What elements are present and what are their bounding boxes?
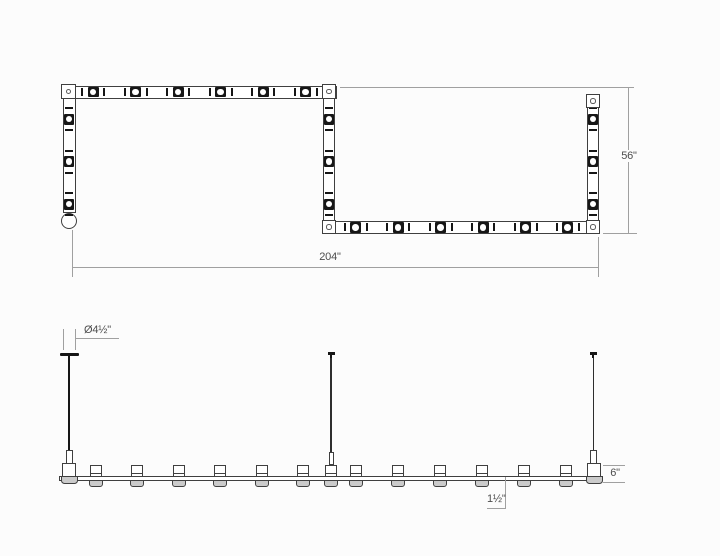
right-end-housing xyxy=(587,463,601,477)
light-module-elevation xyxy=(256,465,268,477)
middle-suspension-cable xyxy=(330,358,331,452)
canopy-dim-leader xyxy=(75,338,119,339)
light-module-elevation xyxy=(214,465,226,477)
right-end-lens xyxy=(586,476,603,484)
light-module-elevation xyxy=(476,465,488,477)
light-module-elevation xyxy=(173,465,185,477)
light-module-lens xyxy=(475,480,489,487)
left-end-housing xyxy=(62,463,76,477)
middle-cable-connector xyxy=(329,452,335,465)
canopy-dim-tick-left xyxy=(63,329,64,350)
light-module-lens xyxy=(255,480,269,487)
light-module-lens xyxy=(349,480,363,487)
light-module-lens xyxy=(517,480,531,487)
light-module-lens xyxy=(324,480,338,487)
light-module-lens xyxy=(172,480,186,487)
technical-drawing-canvas: 56" 204" Ø4½" 6" xyxy=(0,0,720,556)
canopy-dim-label: Ø4½" xyxy=(82,324,113,336)
light-module-elevation xyxy=(434,465,446,477)
light-module-elevation xyxy=(560,465,572,477)
lens-drop-leader-h xyxy=(487,508,506,509)
light-module-lens xyxy=(89,480,103,487)
light-module-elevation xyxy=(350,465,362,477)
light-module-lens xyxy=(391,480,405,487)
light-module-lens xyxy=(213,480,227,487)
end-height-ext-bottom xyxy=(603,482,625,483)
light-module-elevation xyxy=(297,465,309,477)
light-module-elevation xyxy=(90,465,102,477)
lens-drop-label: 1½" xyxy=(485,493,508,505)
canopy-dim-tick-right xyxy=(75,329,76,350)
light-module-elevation xyxy=(325,465,337,477)
left-cable-connector xyxy=(66,450,73,464)
light-module-elevation xyxy=(518,465,530,477)
light-module-elevation xyxy=(131,465,143,477)
left-suspension-cable xyxy=(68,356,70,450)
right-suspension-cable xyxy=(593,358,594,450)
light-module-lens xyxy=(433,480,447,487)
end-height-label: 6" xyxy=(604,467,626,479)
light-module-lens xyxy=(296,480,310,487)
end-height-ext-top xyxy=(603,465,625,466)
light-module-lens xyxy=(130,480,144,487)
light-module-lens xyxy=(559,480,573,487)
elevation-view: Ø4½" 6" 1½" xyxy=(0,0,720,556)
light-module-elevation xyxy=(392,465,404,477)
left-end-lens xyxy=(61,476,78,484)
